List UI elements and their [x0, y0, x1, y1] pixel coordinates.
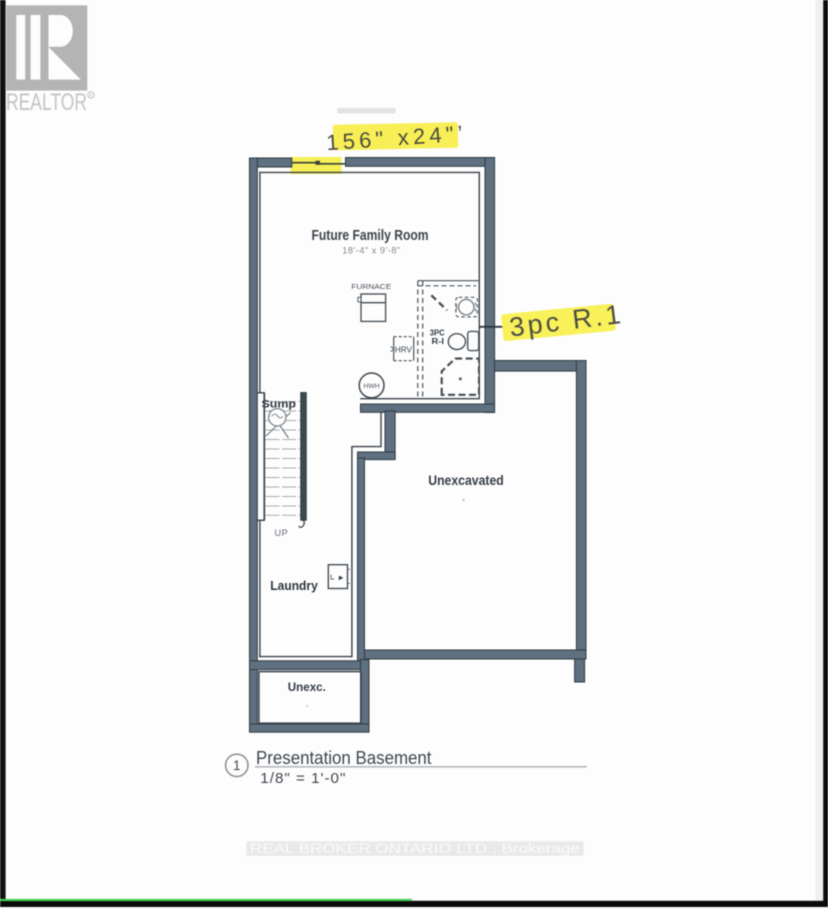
svg-text:Future Family Room: Future Family Room [312, 227, 429, 244]
svg-text:18'-4" x 9'-8": 18'-4" x 9'-8" [342, 245, 400, 255]
svg-text:Unexc.: Unexc. [288, 681, 326, 694]
svg-text:1/8" = 1'-0": 1/8" = 1'-0" [260, 770, 346, 787]
svg-text:Unexcavated: Unexcavated [428, 473, 504, 488]
svg-text:HRV: HRV [395, 344, 412, 354]
svg-text:3PC: 3PC [430, 328, 445, 337]
svg-text:REAL BROKER ONTARIO LTD., Brok: REAL BROKER ONTARIO LTD., Brokerage [250, 841, 580, 856]
svg-text:REALTOR: REALTOR [6, 89, 87, 116]
svg-text:FURNACE: FURNACE [351, 282, 391, 291]
svg-text:R-I: R-I [432, 337, 445, 346]
svg-text:1: 1 [233, 758, 241, 773]
svg-text:UP: UP [275, 528, 289, 538]
svg-text:Laundry: Laundry [270, 578, 318, 593]
svg-text:Presentation Basement: Presentation Basement [256, 748, 432, 768]
svg-text:HWH: HWH [363, 383, 379, 390]
svg-text:R: R [89, 93, 93, 99]
svg-text:Sump: Sump [262, 399, 297, 411]
